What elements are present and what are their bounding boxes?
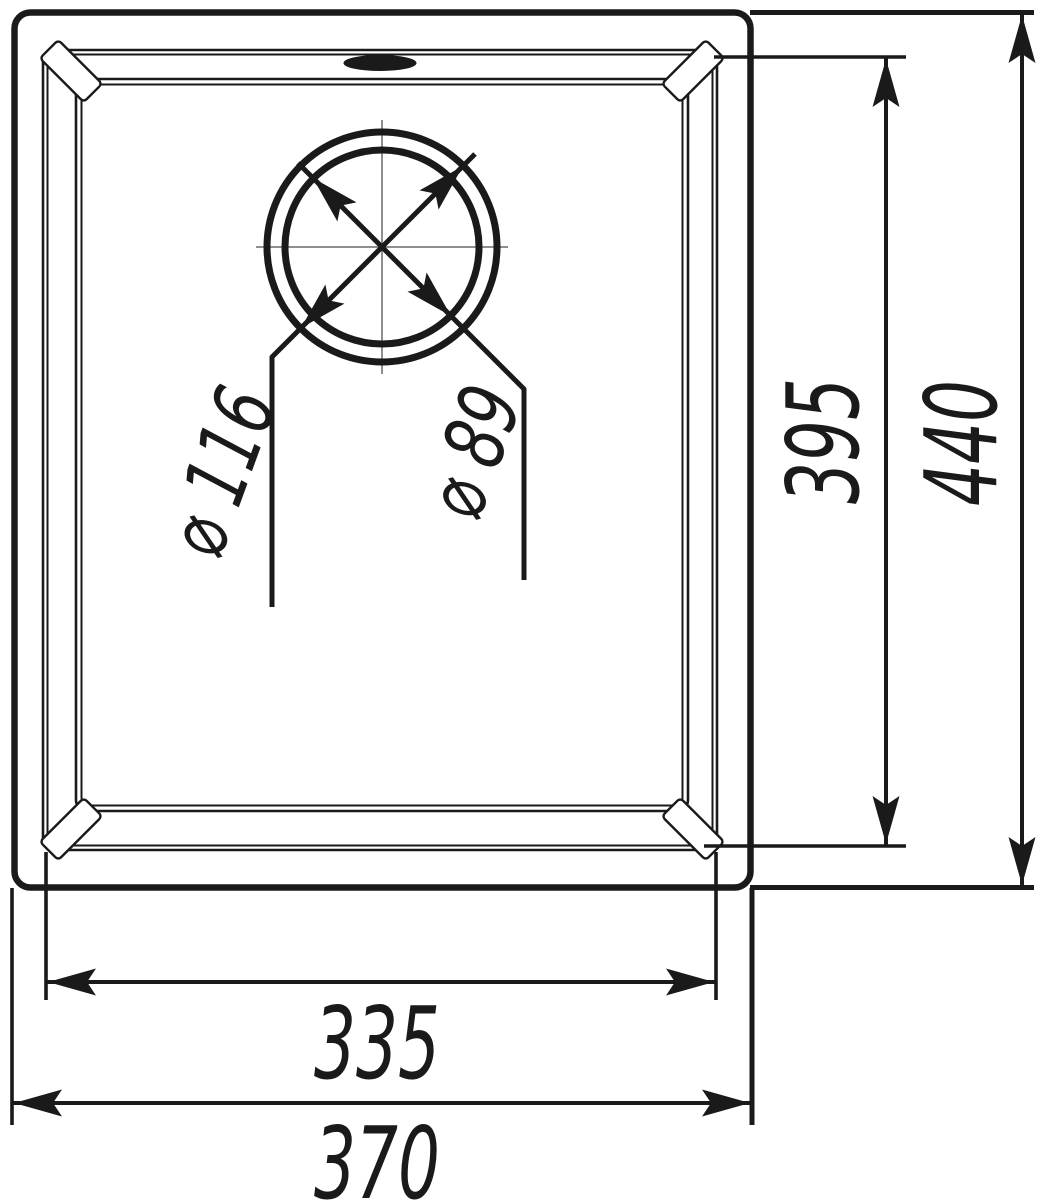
label-overall-depth: 440 <box>903 380 1020 506</box>
dimension-drain-outer: ⌀ 116 <box>146 154 475 607</box>
label-overall-width: 370 <box>314 1105 440 1200</box>
dimension-drain-inner: ⌀ 89 <box>298 163 542 580</box>
sink-technical-drawing: ⌀ 116 ⌀ 89 395 440 335 <box>0 0 1041 1200</box>
rim-outer-line <box>43 50 717 850</box>
drawing-canvas: ⌀ 116 ⌀ 89 395 440 335 <box>0 0 1041 1200</box>
overflow-hole <box>344 56 416 71</box>
leader-line-116 <box>272 154 475 607</box>
dimension-bowl-depth: 395 <box>704 57 906 846</box>
rim-inner-line <box>48 55 713 846</box>
label-bowl-depth: 395 <box>765 378 882 504</box>
label-bowl-width: 335 <box>314 985 440 1102</box>
